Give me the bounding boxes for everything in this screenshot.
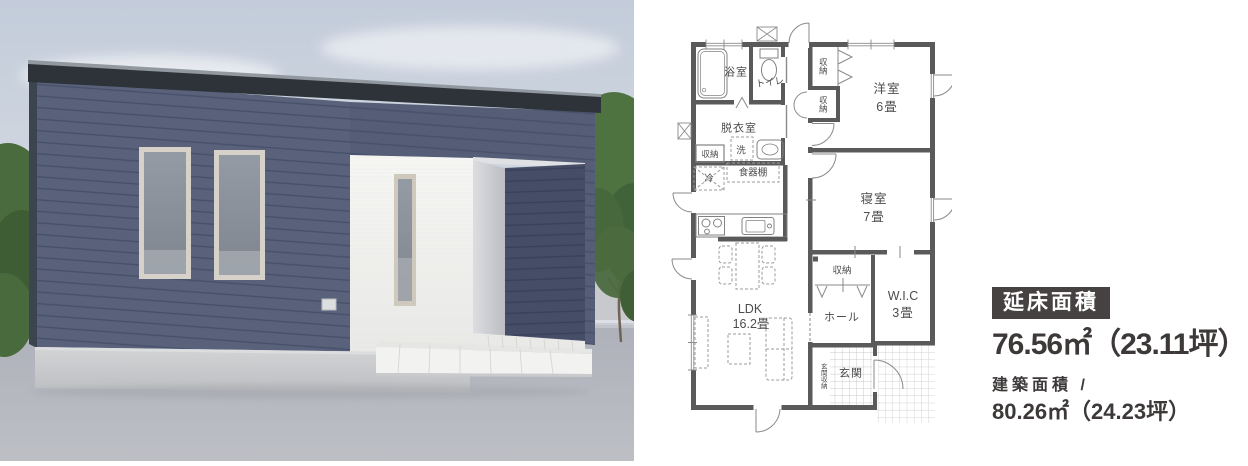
label-cupboard: 食器棚: [739, 168, 768, 178]
room-label-wic: W.I.C: [888, 290, 919, 303]
house: [28, 60, 601, 399]
label-western-room-size: 6畳: [876, 101, 897, 114]
floorplan: 浴室 トイレ 脱衣室 洗 収納 冷 食器棚 収納 収納 洋室 6畳 寝室 7畳 …: [660, 18, 952, 442]
wall-vent: [322, 299, 336, 310]
label-bedroom-size: 7畳: [863, 211, 884, 224]
house-photo: [0, 0, 634, 461]
coffee-table: [728, 334, 750, 364]
area-info: 延床面積 76.56㎡（23.11坪） 建築面積 / 80.26㎡（24.23坪…: [992, 287, 1242, 424]
room-label-entry: 玄関: [839, 369, 863, 380]
label-hall-storage: 収納: [832, 266, 851, 276]
front-window-1: [139, 147, 191, 279]
label-fridge: 冷: [704, 174, 714, 184]
label-washer: 洗: [736, 146, 746, 156]
building-area-value: 80.26㎡（24.23坪）: [992, 400, 1242, 424]
label-ldk-size: 16.2畳: [733, 318, 770, 331]
floorplan-svg: [660, 18, 952, 442]
room-label-bedroom: 寝室: [860, 193, 887, 206]
front-window-2: [214, 150, 265, 280]
counter-edge: [718, 237, 787, 242]
dining-table: [736, 243, 759, 289]
label-storage-b: 収納: [819, 96, 828, 113]
house-photo-svg: [0, 0, 634, 461]
label-storage-a: 収納: [819, 58, 828, 75]
room-label-dressing: 脱衣室: [721, 124, 757, 135]
building-area-label: 建築面積 /: [992, 377, 1242, 395]
label-dressing-storage: 収納: [701, 150, 718, 159]
room-label-ldk: LDK: [738, 303, 762, 316]
room-label-hall: ホール: [824, 313, 860, 324]
vanity-sink: [757, 140, 783, 159]
slit-window: [394, 174, 416, 306]
label-wic-size: 3畳: [892, 307, 913, 320]
label-entry-storage: 玄関収納: [819, 363, 826, 389]
total-floor-area-value: 76.56㎡（23.11坪）: [992, 328, 1242, 361]
house-left-edge: [29, 78, 37, 348]
toilet-tank: [760, 49, 778, 58]
porch-tiles: [877, 345, 935, 423]
house-shadow: [30, 385, 590, 399]
porch-left-reveal: [473, 160, 505, 337]
room-label-bath: 浴室: [724, 68, 748, 79]
room-label-western-room: 洋室: [873, 83, 900, 96]
total-floor-area-badge: 延床面積: [992, 287, 1110, 319]
